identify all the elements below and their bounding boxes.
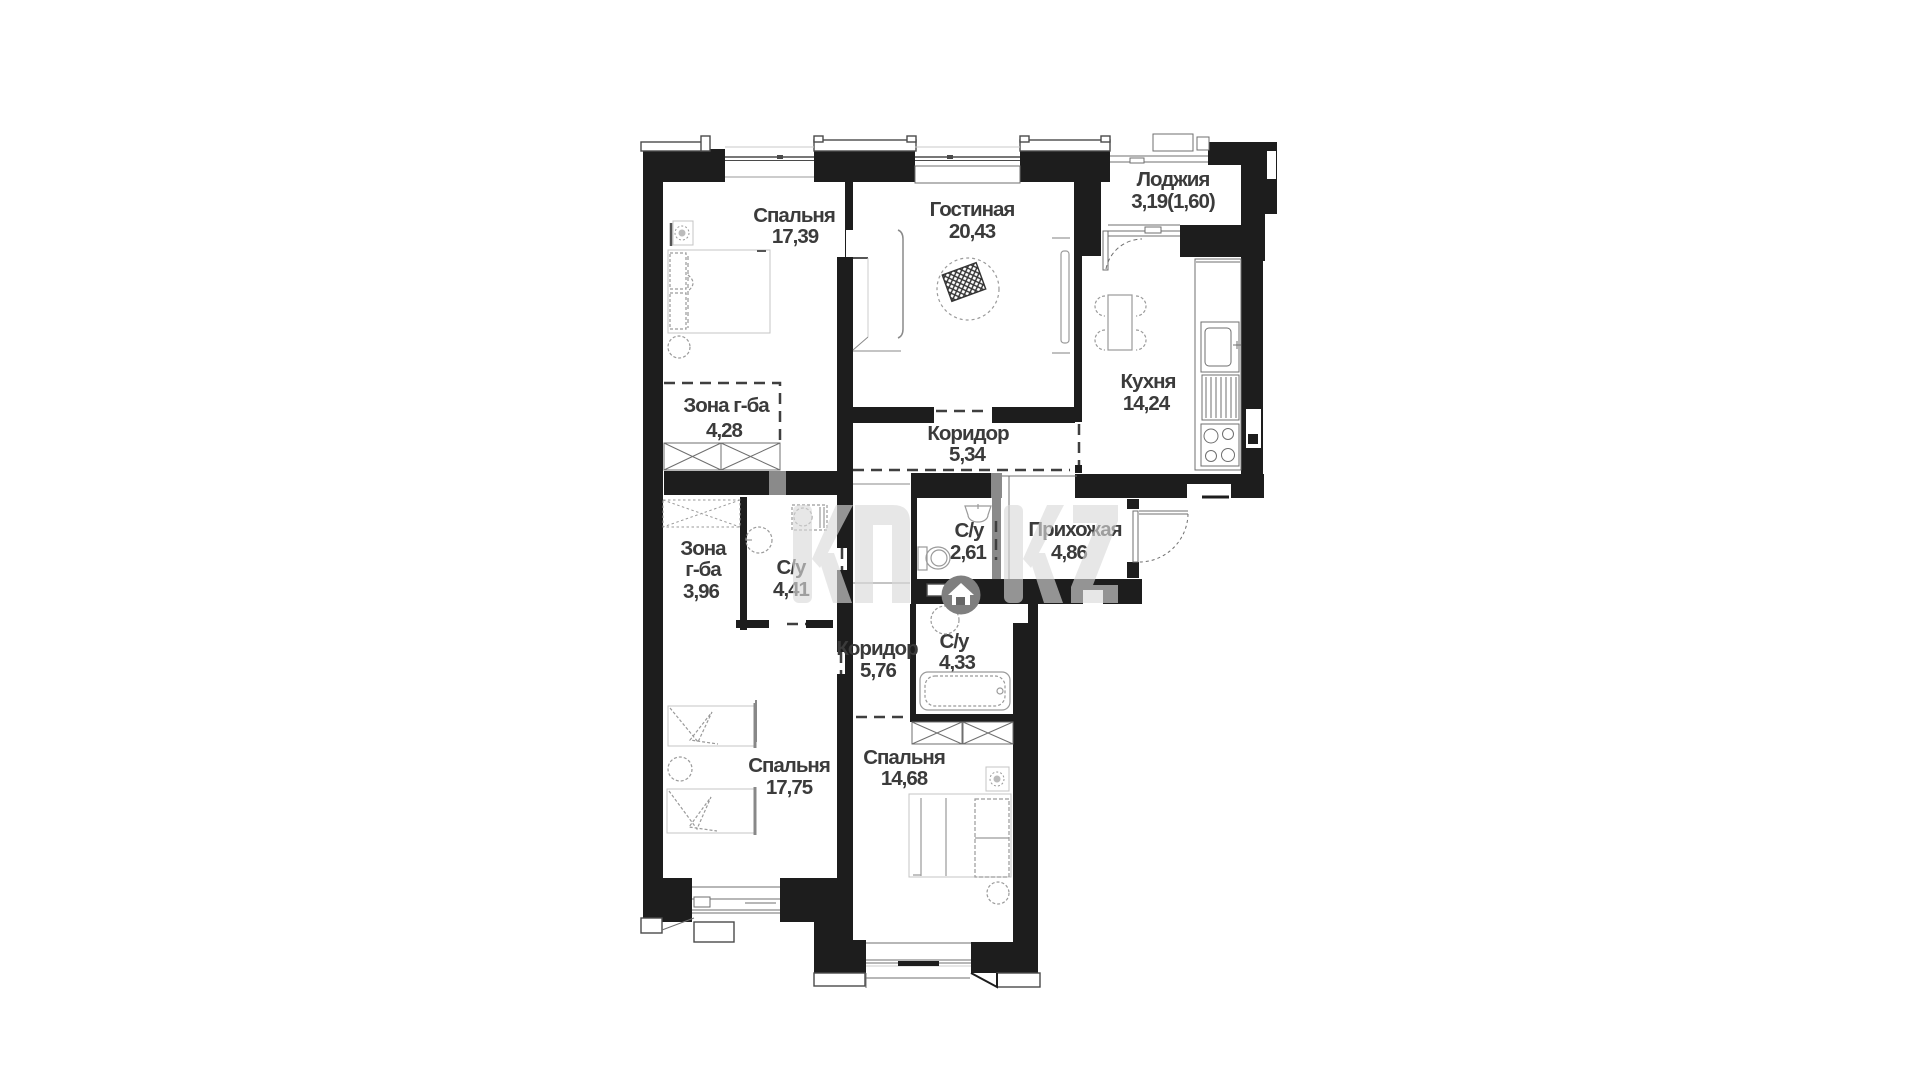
svg-text:3,19(1,60): 3,19(1,60) xyxy=(1131,190,1215,213)
svg-text:14,24: 14,24 xyxy=(1123,392,1171,415)
svg-text:Зона г-ба: Зона г-ба xyxy=(683,394,770,417)
svg-text:Кухня: Кухня xyxy=(1121,370,1176,393)
svg-text:Коридор: Коридор xyxy=(836,637,918,660)
svg-text:Гостиная: Гостиная xyxy=(930,198,1015,221)
svg-text:17,75: 17,75 xyxy=(766,776,813,799)
svg-text:5,34: 5,34 xyxy=(949,443,986,466)
svg-text:5,76: 5,76 xyxy=(860,659,896,682)
svg-text:С/у: С/у xyxy=(955,519,986,542)
svg-text:4,28: 4,28 xyxy=(706,419,742,442)
svg-text:Спальня: Спальня xyxy=(753,204,835,227)
svg-text:17,39: 17,39 xyxy=(772,225,819,248)
svg-text:2,61: 2,61 xyxy=(950,541,986,564)
svg-text:20,43: 20,43 xyxy=(949,220,996,243)
svg-text:Спальня: Спальня xyxy=(748,754,830,777)
svg-text:г-ба: г-ба xyxy=(685,558,722,581)
svg-text:Спальня: Спальня xyxy=(863,746,945,769)
svg-text:3,96: 3,96 xyxy=(683,580,719,603)
svg-text:Зона: Зона xyxy=(680,537,727,560)
svg-text:Лоджия: Лоджия xyxy=(1137,168,1210,191)
svg-text:14,68: 14,68 xyxy=(881,767,928,790)
svg-text:Коридор: Коридор xyxy=(927,422,1009,445)
svg-text:4,33: 4,33 xyxy=(939,651,975,674)
